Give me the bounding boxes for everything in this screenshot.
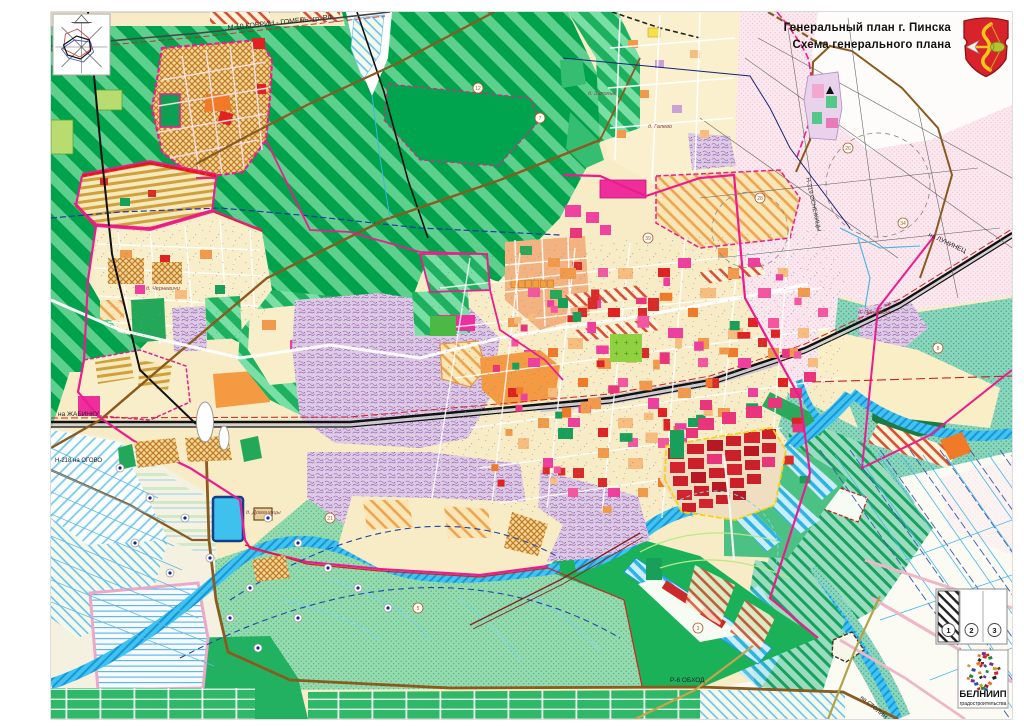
svg-text:28: 28 — [757, 196, 763, 202]
svg-text:21: 21 — [327, 516, 333, 522]
svg-text:3: 3 — [992, 626, 996, 635]
svg-text:Схема генерального плана: Схема генерального плана — [792, 39, 951, 51]
svg-text:на ЖАБИНКУ: на ЖАБИНКУ — [58, 411, 100, 418]
svg-text:градостроительства: градостроительства — [960, 701, 1007, 707]
svg-text:д. Черневичи: д. Черневичи — [146, 286, 180, 292]
svg-text:д. Галево: д. Галево — [648, 124, 672, 130]
svg-text:1: 1 — [946, 626, 950, 635]
svg-text:5: 5 — [417, 606, 420, 612]
svg-text:Н-218 на ОГОВО: Н-218 на ОГОВО — [55, 458, 102, 464]
svg-text:д. Заполье: д. Заполье — [588, 91, 616, 97]
svg-text:+: + — [614, 338, 619, 347]
svg-text:Р-6 ОБХОД: Р-6 ОБХОД — [670, 677, 705, 684]
svg-text:+: + — [634, 349, 639, 358]
svg-text:26: 26 — [845, 146, 851, 152]
svg-text:3: 3 — [697, 626, 700, 632]
svg-text:Генеральный план г. Пинска: Генеральный план г. Пинска — [784, 22, 952, 34]
svg-text:7: 7 — [539, 116, 542, 122]
svg-text:+: + — [634, 338, 639, 347]
svg-text:д. Домашицы: д. Домашицы — [246, 510, 281, 516]
svg-text:д. Пинковичи: д. Пинковичи — [858, 310, 892, 316]
svg-text:34: 34 — [900, 221, 906, 227]
svg-text:+: + — [624, 338, 629, 347]
svg-text:12: 12 — [475, 86, 481, 92]
svg-text:БЕЛНИИП: БЕЛНИИП — [959, 689, 1006, 700]
svg-text:+: + — [624, 349, 629, 358]
svg-text:+: + — [614, 349, 619, 358]
svg-text:8: 8 — [937, 346, 940, 352]
svg-text:2: 2 — [969, 626, 973, 635]
svg-text:39: 39 — [645, 236, 651, 242]
